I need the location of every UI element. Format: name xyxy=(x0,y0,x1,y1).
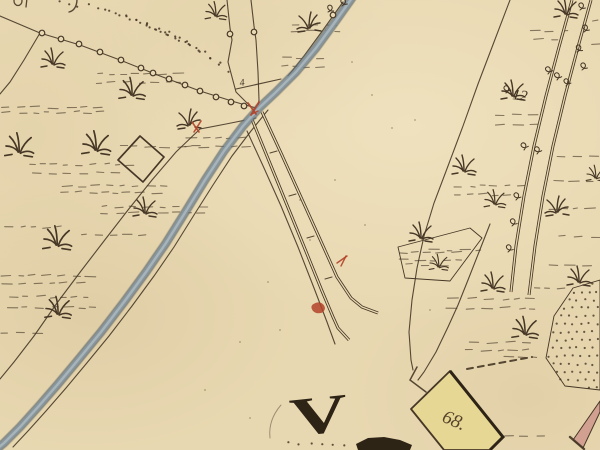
dot-fill xyxy=(584,298,586,300)
dot-fill xyxy=(575,316,577,318)
hatch-dashes xyxy=(498,350,503,351)
hatch-dashes xyxy=(549,265,558,266)
hatch-dashes xyxy=(28,274,35,275)
hatch-dashes xyxy=(282,65,288,66)
hatch-dashes xyxy=(132,186,138,187)
dot-fill xyxy=(581,291,583,293)
hatch-dashes xyxy=(37,295,46,296)
hatch-dashes xyxy=(487,343,497,344)
dot-fill xyxy=(573,292,575,294)
dot-fill xyxy=(556,371,558,373)
hatch-dashes xyxy=(102,206,107,207)
speck xyxy=(267,281,269,283)
hatch-dashes xyxy=(1,276,11,277)
dot-fill xyxy=(575,299,577,301)
dot-row xyxy=(343,444,345,446)
dot-fill xyxy=(584,315,586,317)
hatch-dashes xyxy=(500,307,510,308)
dot-row xyxy=(59,0,61,2)
hatch-dashes xyxy=(145,147,156,148)
map-sheet: historical hand-drawn cadastral map shee… xyxy=(0,0,600,450)
dot-fill xyxy=(571,371,573,373)
hatch-dashes xyxy=(105,163,110,164)
dot-fill xyxy=(588,355,590,357)
pink-road xyxy=(573,401,600,448)
scrub-curl xyxy=(579,3,586,10)
speck xyxy=(351,61,353,63)
tree-circle xyxy=(251,29,257,35)
grass-tuft xyxy=(512,316,538,338)
dot-row xyxy=(332,444,334,446)
grass-tuft xyxy=(567,266,591,286)
hatch-dashes xyxy=(58,275,65,276)
grass-tuft xyxy=(5,133,34,157)
dot-fill xyxy=(569,347,571,349)
hatch-dashes xyxy=(35,308,43,309)
hatch-dashes xyxy=(411,252,418,253)
hatch-dashes xyxy=(242,147,251,148)
dot-fill xyxy=(577,379,579,381)
hatch-dashes xyxy=(62,186,72,187)
speck xyxy=(371,94,373,96)
speck xyxy=(249,417,251,419)
dot-fill xyxy=(587,306,589,308)
tree-circle xyxy=(228,99,234,105)
dot-fill xyxy=(579,371,581,373)
dot-fill xyxy=(564,323,566,325)
hatch-dashes xyxy=(107,82,115,83)
speck xyxy=(364,224,366,226)
scrub-curl xyxy=(521,141,530,150)
dot-fill xyxy=(596,386,598,388)
parcel-curve xyxy=(418,224,490,380)
dot-fill xyxy=(591,364,593,366)
hatch-dashes xyxy=(71,296,77,297)
dot-row xyxy=(135,19,137,21)
dot-fill xyxy=(587,322,589,324)
dot-fill xyxy=(564,371,566,373)
tree-circle xyxy=(76,41,82,47)
hatch-dashes xyxy=(534,39,544,40)
scrub-curl xyxy=(534,146,542,155)
partial-digit xyxy=(14,0,22,6)
dot-fill xyxy=(589,291,591,293)
dot-fill xyxy=(591,346,593,348)
dot-fill xyxy=(564,354,566,356)
road-tick xyxy=(325,277,332,279)
hatch-dashes xyxy=(57,113,66,114)
dot-fill xyxy=(560,363,562,365)
dot-row xyxy=(178,40,180,42)
speck xyxy=(279,329,281,331)
dot-fill xyxy=(597,306,599,308)
dot-fill xyxy=(580,323,582,325)
speck xyxy=(299,199,301,201)
east-road-edge-left-core xyxy=(511,0,572,292)
dot-row xyxy=(108,10,110,12)
partial-digit xyxy=(26,0,27,7)
map-label: V xyxy=(287,382,351,448)
tree-circle xyxy=(241,103,247,109)
speck xyxy=(334,179,336,181)
dot-row xyxy=(160,31,162,33)
hatch-dashes xyxy=(18,107,25,108)
scrub-curl xyxy=(554,72,562,81)
dot-fill xyxy=(571,338,573,340)
hatch-dashes xyxy=(59,282,67,283)
speck xyxy=(309,239,311,241)
grass-tuft xyxy=(554,0,578,18)
speck xyxy=(204,389,206,391)
speck xyxy=(239,341,241,343)
hatch-dashes xyxy=(506,341,515,342)
grass-tuft xyxy=(429,254,448,270)
hatch-dashes xyxy=(97,172,104,173)
dot-fill xyxy=(559,378,561,380)
dot-fill xyxy=(571,306,573,308)
red-mark xyxy=(341,256,346,266)
hatch-dashes xyxy=(593,20,598,21)
dot-row xyxy=(195,47,197,49)
tree-circle xyxy=(150,70,156,76)
hatch-dashes xyxy=(82,234,87,235)
dot-row xyxy=(219,62,221,64)
hatch-dashes xyxy=(471,187,475,188)
dot-fill xyxy=(577,364,579,366)
road-tick xyxy=(307,236,314,238)
dot-fill xyxy=(591,330,593,332)
grass-tuft xyxy=(119,77,145,99)
dot-fill xyxy=(588,387,590,389)
hatch-dashes xyxy=(573,208,577,209)
dot-fill xyxy=(560,332,562,334)
dashed-path xyxy=(467,357,532,369)
dot-fill xyxy=(575,346,577,348)
tree-circle xyxy=(58,36,64,42)
dot-row xyxy=(115,12,117,14)
main-road-edge-left xyxy=(251,117,349,340)
tree-circle xyxy=(166,76,172,82)
hatch-dashes xyxy=(452,251,462,252)
dot-fill xyxy=(583,331,585,333)
hatch-dashes xyxy=(585,208,596,209)
dot-row xyxy=(118,14,120,16)
dot-row xyxy=(164,31,166,33)
red-blob xyxy=(312,303,324,313)
dot-fill xyxy=(552,331,554,333)
hatch-dashes xyxy=(484,299,493,300)
scrub-curl xyxy=(514,192,522,200)
grass-tuft xyxy=(586,165,600,181)
hatch-dashes xyxy=(77,282,85,283)
grass-tuft xyxy=(133,197,157,217)
hatch-dashes xyxy=(505,185,510,186)
dot-fill xyxy=(588,371,590,373)
dot-row xyxy=(198,50,200,52)
field-boundary xyxy=(251,0,259,108)
dot-fill xyxy=(547,356,549,358)
hatch-dashes xyxy=(139,235,146,236)
hedge xyxy=(356,437,412,450)
partial-letter xyxy=(69,0,77,12)
hatch-dashes xyxy=(90,164,96,165)
scrub-curl xyxy=(506,244,513,252)
grass-tuft xyxy=(205,2,227,20)
dot-row xyxy=(184,41,186,43)
hatch-dashes xyxy=(468,297,477,298)
dot-fill xyxy=(589,339,591,341)
dot-fill xyxy=(556,355,558,357)
dot-row xyxy=(227,71,229,73)
dot-row xyxy=(174,37,176,39)
dot-fill xyxy=(585,363,587,365)
hatch-dashes xyxy=(520,308,526,309)
tree-row-boundary xyxy=(40,33,256,108)
hatch-dashes xyxy=(496,124,505,125)
map-label: 4 xyxy=(239,77,245,89)
dot-fill xyxy=(552,347,554,349)
tree-circle xyxy=(39,30,45,36)
hatch-dashes xyxy=(559,235,565,236)
dot-row xyxy=(146,22,148,24)
hatch-dashes xyxy=(129,212,139,213)
scrub-curl xyxy=(510,218,517,226)
map-label: 12 xyxy=(511,87,529,105)
hatch-dashes xyxy=(503,195,510,196)
speck xyxy=(414,119,416,121)
dot-fill xyxy=(563,308,565,310)
dot-row xyxy=(179,37,181,39)
dot-fill xyxy=(560,314,562,316)
hatch-dashes xyxy=(216,137,222,138)
hatch-dashes xyxy=(30,106,39,107)
dot-row xyxy=(287,441,289,443)
map-canvas: V68.124 xyxy=(0,0,600,450)
dot-fill xyxy=(597,338,599,340)
dot-fill xyxy=(568,363,570,365)
grass-tuft xyxy=(481,272,505,292)
hatch-dashes xyxy=(592,44,600,45)
dot-fill xyxy=(595,291,597,293)
east-road-edge-left xyxy=(511,0,572,292)
dot-row xyxy=(68,3,70,5)
tree-circle xyxy=(138,65,144,71)
dot-row xyxy=(158,28,160,30)
hatch-dashes xyxy=(436,252,445,253)
dot-fill xyxy=(556,323,558,325)
grass-tuft xyxy=(43,226,72,250)
dot-row xyxy=(155,29,157,31)
field-boundary xyxy=(0,33,40,94)
dot-fill xyxy=(565,340,567,342)
speck xyxy=(391,127,393,129)
dot-fill xyxy=(585,378,587,380)
dot-fill xyxy=(568,314,570,316)
dot-fill xyxy=(581,339,583,341)
hatch-dashes xyxy=(406,264,412,265)
dot-fill xyxy=(592,315,594,317)
tree-circle xyxy=(227,31,233,37)
hatched-parcel xyxy=(398,228,482,281)
dot-row xyxy=(218,64,220,66)
speck xyxy=(429,309,431,311)
dot-fill xyxy=(572,354,574,356)
dot-row xyxy=(125,14,127,16)
dotted-parcel xyxy=(546,280,600,390)
hatch-dashes xyxy=(81,107,87,108)
dot-row xyxy=(88,3,90,5)
hatch-dashes xyxy=(42,275,51,276)
grass-tuft xyxy=(545,196,569,216)
scrub-curl xyxy=(581,63,588,70)
dot-fill xyxy=(579,355,581,357)
dot-fill xyxy=(597,323,599,325)
dot-fill xyxy=(596,372,598,374)
hatch-dashes xyxy=(574,236,582,237)
dot-row xyxy=(188,43,190,45)
dot-fill xyxy=(571,323,573,325)
faint-arc xyxy=(270,405,281,438)
dot-row xyxy=(149,26,151,28)
hatch-dashes xyxy=(75,191,81,192)
tree-circle xyxy=(118,57,124,63)
road-tick xyxy=(270,151,277,153)
hatch-dashes xyxy=(120,185,124,186)
dot-fill xyxy=(596,354,598,356)
tree-circle xyxy=(330,12,336,18)
dot-fill xyxy=(567,379,569,381)
dot-fill xyxy=(576,331,578,333)
dot-row xyxy=(209,57,211,59)
hatch-dashes xyxy=(91,185,100,186)
dot-fill xyxy=(560,347,562,349)
dot-fill xyxy=(568,331,570,333)
grass-tuft xyxy=(297,12,321,32)
grass-tuft xyxy=(484,190,506,208)
dot-fill xyxy=(553,362,555,364)
hatch-dashes xyxy=(96,111,104,112)
dot-row xyxy=(104,9,106,11)
tree-circle xyxy=(213,94,219,100)
hatch-dashes xyxy=(115,207,123,208)
dot-fill xyxy=(593,300,595,302)
dot-row xyxy=(97,7,99,9)
grass-tuft xyxy=(452,155,476,175)
hatch-dashes xyxy=(481,350,491,351)
hatch-dashes xyxy=(518,185,526,186)
dot-row xyxy=(167,34,169,36)
hatch-dashes xyxy=(316,67,325,68)
hatch-dashes xyxy=(21,226,25,227)
hatch-dashes xyxy=(479,193,487,194)
grass-tuft xyxy=(41,48,65,68)
hatch-dashes xyxy=(514,298,519,299)
dot-row xyxy=(168,31,170,33)
dot-fill xyxy=(581,306,583,308)
farm-building-outline xyxy=(118,136,164,182)
hatch-dashes xyxy=(57,226,62,227)
grass-tuft xyxy=(82,131,111,155)
tree-circle xyxy=(197,88,203,94)
field-boundary xyxy=(227,0,250,106)
hatch-dashes xyxy=(19,283,26,284)
parcel-curve xyxy=(409,0,510,370)
field-boundary xyxy=(0,16,40,33)
road-tick xyxy=(289,194,296,196)
dot-row xyxy=(174,35,176,37)
dot-fill xyxy=(593,379,595,381)
hatch-dashes xyxy=(93,107,102,108)
dot-row xyxy=(204,51,206,53)
tree-circle xyxy=(97,49,103,55)
dot-row xyxy=(139,22,141,24)
hatch-dashes xyxy=(466,309,474,310)
hatch-dashes xyxy=(2,112,10,113)
dot-row xyxy=(129,18,131,20)
hatch-dashes xyxy=(43,228,51,229)
hatch-dashes xyxy=(523,349,529,350)
dot-fill xyxy=(556,340,558,342)
hatch-dashes xyxy=(503,299,509,300)
hatch-dashes xyxy=(74,111,79,112)
dot-fill xyxy=(584,347,586,349)
tree-circle xyxy=(182,82,188,88)
hatch-dashes xyxy=(557,288,565,289)
dot-fill xyxy=(569,298,571,300)
hatch-dashes xyxy=(400,253,408,254)
